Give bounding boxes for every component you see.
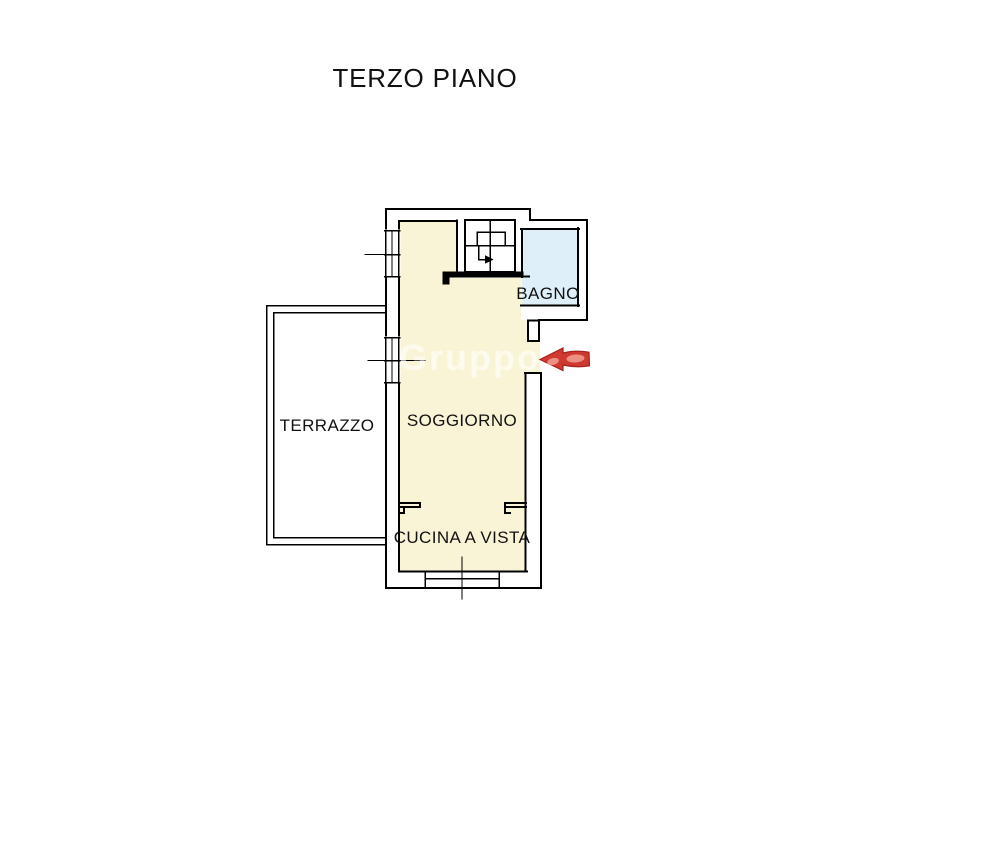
floor-plan-page: TERZO PIANO	[0, 0, 993, 847]
staircase	[465, 220, 515, 272]
entrance-arrow-icon	[540, 348, 590, 371]
watermark: Gruppo	[399, 337, 541, 378]
staircase-steps	[465, 220, 515, 272]
staircase-direction-arrow-icon	[486, 256, 493, 263]
window-upper-left	[365, 230, 401, 278]
room-label-bagno: BAGNO	[516, 284, 579, 303]
page-title: TERZO PIANO	[332, 63, 517, 93]
stair-wall-tab	[443, 277, 449, 284]
room-label-terrazzo: TERRAZZO	[280, 416, 375, 435]
staircase-direction-line	[479, 246, 486, 260]
floor-plan-canvas: TERZO PIANO	[0, 0, 993, 847]
floor-plan: Gruppo TERRAZZO SOGGIORNO BAGNO CUCINA A…	[267, 209, 590, 599]
room-label-cucina: CUCINA A VISTA	[394, 528, 531, 547]
room-label-soggiorno: SOGGIORNO	[407, 411, 517, 430]
